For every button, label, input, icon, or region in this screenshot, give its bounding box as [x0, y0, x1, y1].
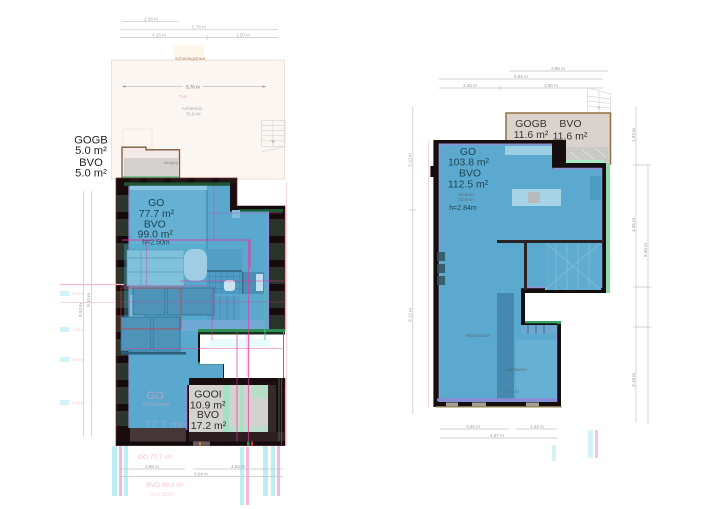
svg-text:8.60 m: 8.60 m [643, 243, 648, 257]
svg-text:1.50 m: 1.50 m [236, 32, 250, 37]
svg-text:5.0 m²: 5.0 m² [75, 168, 107, 180]
svg-text:h=2.50m: h=2.50m [142, 240, 170, 247]
svg-text:103.8 m²: 103.8 m² [448, 157, 490, 168]
svg-text:2.95 m: 2.95 m [72, 357, 85, 362]
svg-text:3.50 m: 3.50 m [544, 83, 558, 88]
svg-text:GO 77.7 m²: GO 77.7 m² [138, 454, 173, 461]
svg-text:2.86 m: 2.86 m [145, 464, 159, 469]
svg-text:1.20 m: 1.20 m [72, 327, 85, 332]
svg-text:5.76 m: 5.76 m [192, 25, 206, 30]
svg-text:6.04 m: 6.04 m [194, 471, 208, 476]
svg-text:Woonkamer: Woonkamer [143, 402, 170, 408]
svg-text:Schuttingstraat: Schuttingstraat [175, 56, 206, 61]
svg-text:BVO: BVO [559, 118, 581, 130]
svg-text:4.05 m: 4.05 m [631, 218, 636, 232]
svg-text:4.52 m: 4.52 m [231, 464, 245, 469]
svg-text:33.9 m²: 33.9 m² [458, 197, 474, 202]
svg-text:2.74 m: 2.74 m [72, 291, 85, 296]
svg-text:Badkamer: Badkamer [507, 367, 528, 372]
svg-text:4.97 m: 4.97 m [490, 433, 504, 438]
svg-text:2.36 m: 2.36 m [144, 17, 158, 22]
svg-text:11.6 m²: 11.6 m² [514, 129, 549, 141]
svg-text:Berging: Berging [164, 160, 178, 165]
svg-text:1.93 m: 1.93 m [631, 128, 636, 142]
svg-text:5.0 m²: 5.0 m² [75, 145, 107, 157]
svg-text:5.76 m: 5.76 m [186, 84, 200, 89]
svg-text:8.93 m: 8.93 m [78, 303, 83, 317]
svg-text:4.26 m: 4.26 m [463, 83, 477, 88]
svg-text:GOOI: GOOI [194, 388, 221, 400]
svg-text:77.7 m²: 77.7 m² [139, 209, 175, 220]
svg-text:17.2 m²: 17.2 m² [191, 420, 227, 432]
svg-text:BVO 99.0 m²: BVO 99.0 m² [146, 482, 184, 489]
svg-text:Achtertuin: Achtertuin [182, 106, 203, 111]
svg-text:1.42 m: 1.42 m [530, 424, 544, 429]
svg-text:h=2.84m: h=2.84m [449, 205, 477, 212]
svg-text:Woonkamer: Woonkamer [466, 333, 491, 338]
svg-text:112.5 m²: 112.5 m² [448, 179, 489, 190]
svg-text:1.80 m: 1.80 m [505, 389, 519, 394]
svg-text:79.6 m²: 79.6 m² [185, 112, 201, 117]
svg-text:3.18 m: 3.18 m [631, 373, 636, 387]
svg-text:3.45 m: 3.45 m [466, 424, 480, 429]
svg-text:6.12 m: 6.12 m [408, 308, 413, 322]
svg-text:4.26 m: 4.26 m [152, 32, 166, 37]
svg-text:h=2.50m: h=2.50m [150, 492, 174, 498]
svg-text:GO: GO [460, 147, 476, 158]
svg-text:2.96 m: 2.96 m [551, 66, 565, 71]
svg-text:3.10 m: 3.10 m [408, 153, 413, 167]
svg-text:9.10 m: 9.10 m [86, 293, 91, 307]
svg-text:GO: GO [148, 198, 164, 209]
svg-text:2.18 m: 2.18 m [72, 400, 85, 405]
svg-text:Tuin: Tuin [179, 94, 188, 99]
svg-text:GO: GO [146, 390, 164, 402]
svg-text:BVO: BVO [459, 168, 481, 179]
svg-text:5.62 m: 5.62 m [514, 74, 528, 79]
